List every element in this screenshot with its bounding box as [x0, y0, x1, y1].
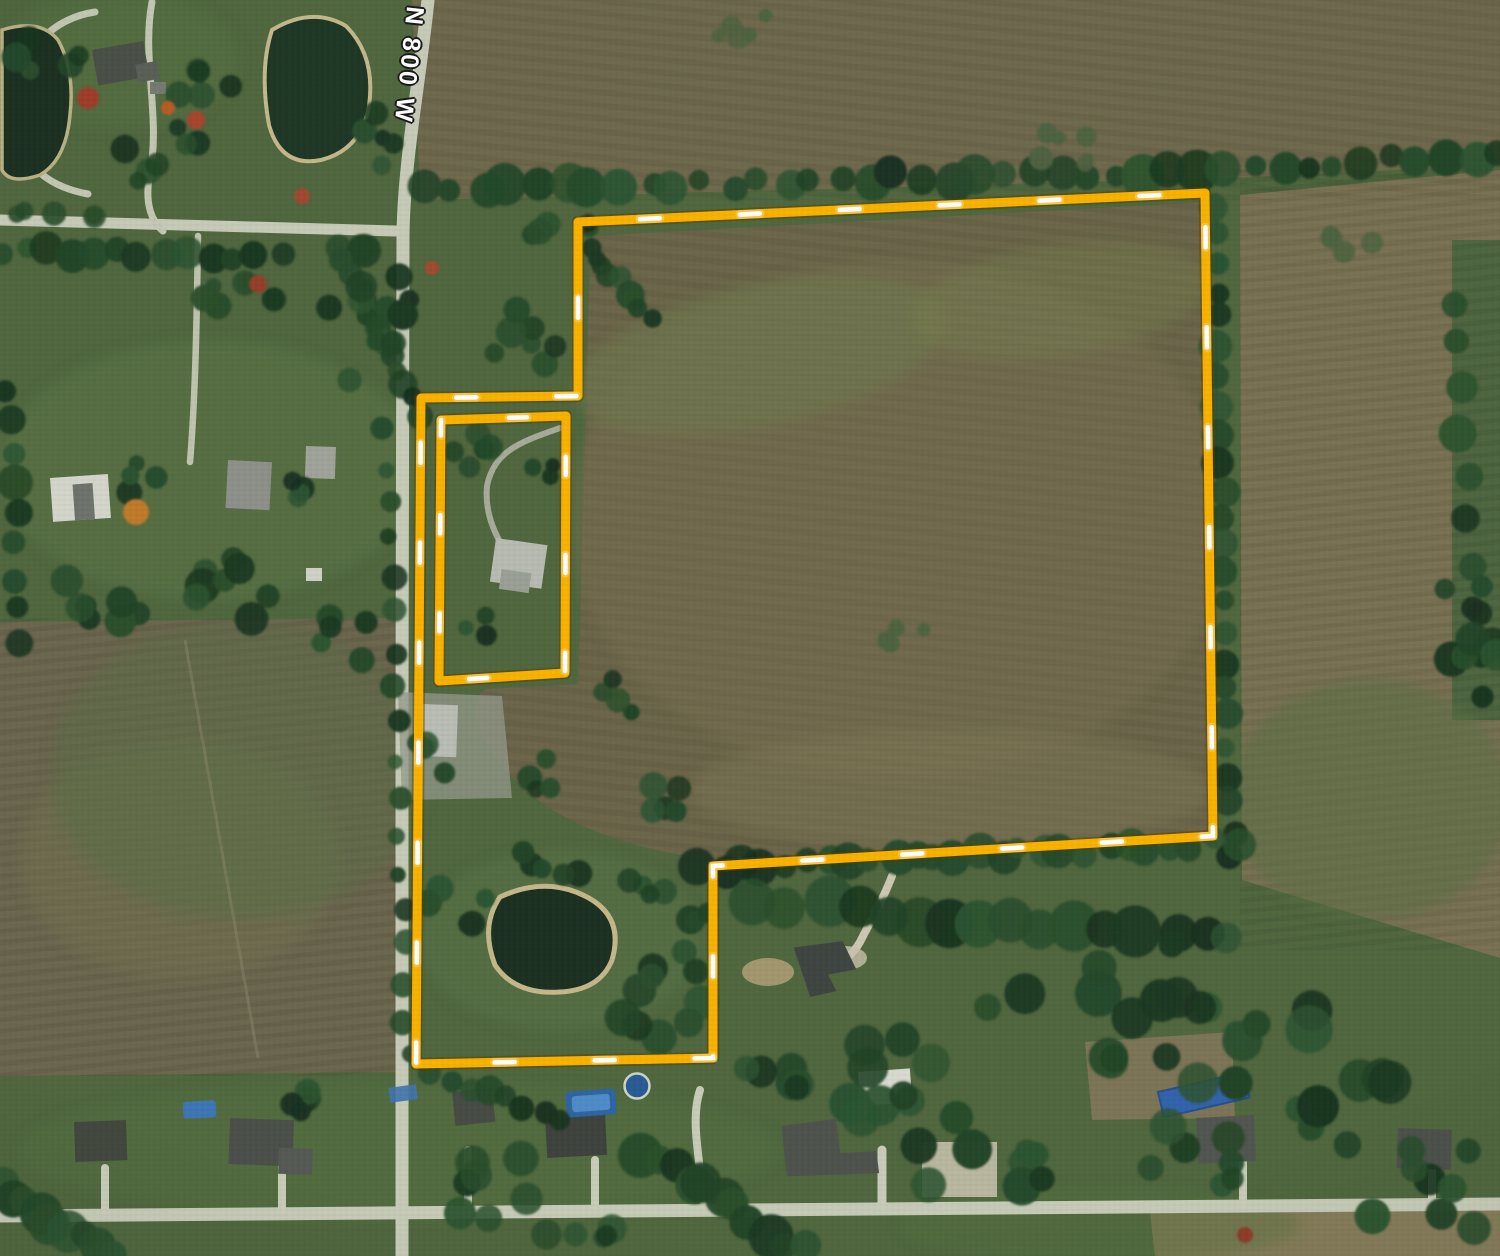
house-roof — [278, 1148, 313, 1175]
house-roof — [135, 61, 160, 83]
house-roof — [305, 446, 336, 479]
house-roof — [783, 930, 862, 1006]
satellite-map[interactable]: N 800 W — [0, 0, 1500, 1256]
shed-roof — [306, 568, 322, 581]
house-roof — [225, 460, 271, 510]
satellite-imagery-layer — [0, 0, 1500, 1256]
sand-patch — [742, 958, 794, 986]
house-roof — [499, 569, 531, 593]
swimming-pool — [571, 1094, 610, 1113]
pond — [265, 17, 371, 161]
swimming-pool — [183, 1100, 217, 1119]
round-pool — [625, 1074, 650, 1099]
shed-roof — [150, 82, 166, 94]
house-roof — [73, 483, 95, 520]
house-roof — [74, 1120, 127, 1162]
pond — [489, 886, 616, 992]
